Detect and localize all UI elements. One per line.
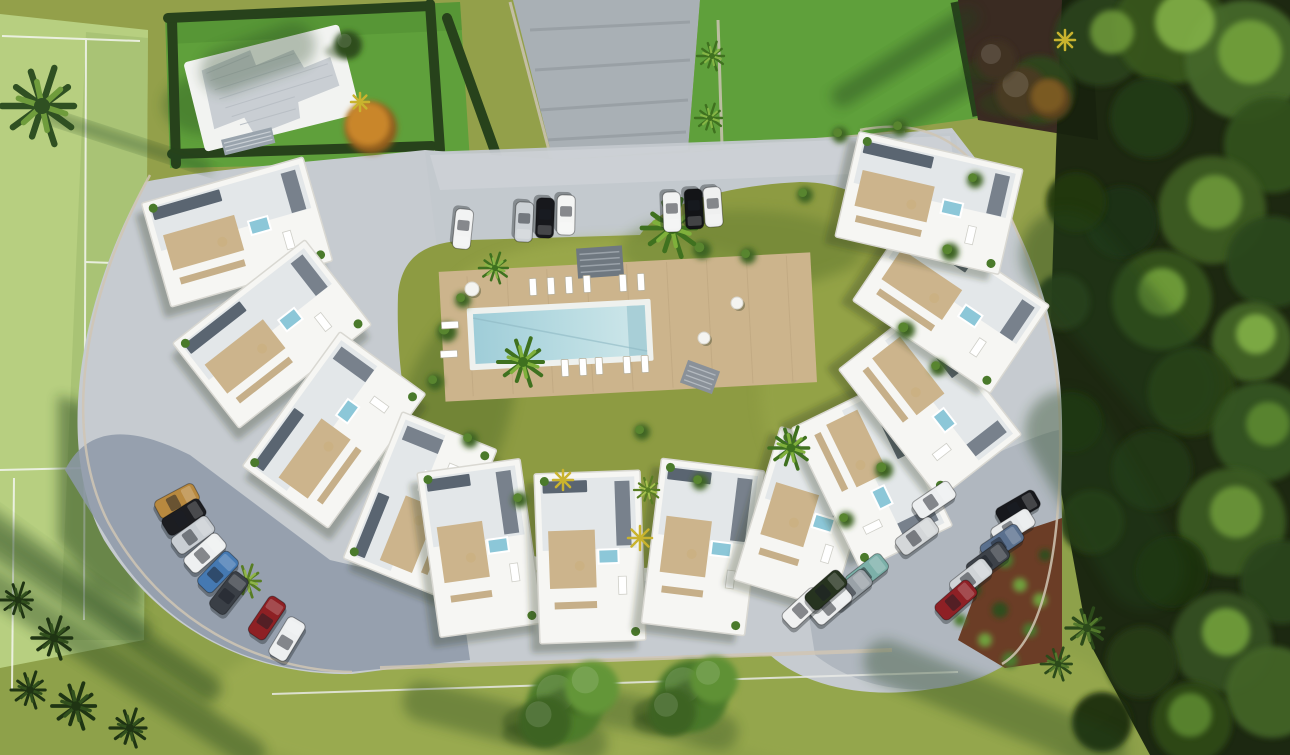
- bush-highlight: [635, 425, 644, 434]
- tree-canopy-light: [654, 693, 678, 717]
- bush-highlight: [456, 293, 465, 302]
- tree-canopy-light: [572, 666, 599, 693]
- sun-lounger: [441, 321, 458, 329]
- bush-highlight: [893, 121, 902, 130]
- bush-highlight: [898, 322, 908, 332]
- tree-canopy-light: [696, 661, 720, 685]
- palm-crown: [645, 487, 651, 493]
- roof-deck: [660, 516, 712, 578]
- palm-crown: [492, 265, 498, 271]
- yellow-plant: [351, 93, 369, 111]
- rooftop-jacuzzi: [487, 537, 509, 554]
- car-hood: [516, 229, 530, 239]
- forest-tree-highlight: [1218, 20, 1282, 84]
- car-hood: [559, 222, 573, 232]
- palm-crown: [126, 724, 134, 732]
- forest-tree-highlight: [1188, 175, 1242, 229]
- car-hood: [537, 225, 551, 235]
- pergola: [555, 601, 598, 609]
- forest-tree-highlight: [1202, 608, 1250, 656]
- palm-crown: [71, 701, 81, 711]
- bush-highlight: [833, 128, 842, 137]
- garden-plant: [978, 633, 992, 647]
- car-hood: [665, 219, 679, 229]
- garden-plant: [992, 602, 1008, 618]
- stairs-main: [576, 245, 624, 278]
- sun-lounger: [595, 357, 603, 374]
- sun-lounger: [561, 359, 569, 376]
- palm-crown: [34, 98, 50, 114]
- sun-lounger: [529, 278, 537, 295]
- car-windshield: [518, 213, 531, 224]
- rooftop-jacuzzi: [598, 549, 618, 564]
- car-windshield: [457, 220, 470, 232]
- palm-crown: [709, 53, 715, 59]
- building-module: [525, 470, 646, 653]
- car-hood: [454, 235, 469, 246]
- sun-lounger: [565, 276, 573, 293]
- forest-tree-highlight: [1246, 402, 1290, 446]
- bush-highlight: [513, 493, 522, 502]
- sun-lounger: [619, 274, 627, 291]
- aerial-site-render: [0, 0, 1290, 755]
- car: [511, 198, 534, 242]
- bush-highlight: [798, 188, 807, 197]
- forest-tree-highlight: [1168, 693, 1212, 737]
- bush-highlight: [931, 361, 940, 370]
- roof-panel-side: [614, 481, 631, 546]
- yellow-plant: [553, 470, 573, 490]
- car-windshield: [560, 206, 572, 217]
- bush-highlight: [463, 433, 472, 442]
- forest-tree: [1106, 626, 1178, 698]
- tree-canopy-light: [981, 44, 1001, 64]
- car: [532, 195, 554, 239]
- building-module: [408, 459, 544, 648]
- bush-highlight: [942, 244, 952, 254]
- orange-tree: [1031, 79, 1065, 113]
- sun-lounger: [623, 356, 631, 373]
- palm-crown: [707, 115, 713, 121]
- car: [699, 183, 723, 227]
- car: [659, 189, 681, 233]
- forest-tree-highlight: [1090, 10, 1134, 54]
- bush-highlight: [839, 513, 848, 522]
- car-windshield: [688, 200, 701, 211]
- forest-tree-highlight: [1236, 314, 1276, 354]
- sun-lounger: [583, 275, 591, 292]
- car-windshield: [666, 203, 678, 214]
- car-windshield: [706, 198, 719, 209]
- roof-deck: [437, 521, 490, 583]
- car-hood: [687, 216, 701, 226]
- scene-svg: [0, 0, 1290, 755]
- sun-lounger: [641, 355, 649, 372]
- roof-deck: [548, 530, 597, 589]
- bush-highlight: [876, 462, 886, 472]
- forest-tree: [1110, 78, 1190, 158]
- car: [449, 205, 474, 250]
- car: [554, 192, 576, 235]
- round-table: [731, 297, 743, 309]
- palm-crown: [26, 686, 34, 694]
- bush-highlight: [741, 249, 750, 258]
- sun-lounger: [637, 273, 645, 290]
- hedge-left: [172, 20, 176, 164]
- yellow-plant: [1055, 30, 1075, 50]
- bush-highlight: [428, 375, 437, 384]
- palm-crown: [518, 357, 528, 367]
- palm-crown: [1055, 661, 1062, 668]
- bush-highlight: [693, 475, 702, 484]
- bush-highlight: [968, 173, 977, 182]
- rooftop-lounger: [618, 576, 627, 594]
- palm-crown: [787, 444, 796, 453]
- palm-crown: [50, 634, 59, 643]
- palm-crown: [1083, 624, 1091, 632]
- round-table: [698, 332, 710, 344]
- tree-canopy-light: [526, 701, 552, 727]
- forest-tree-highlight: [1210, 486, 1262, 538]
- palm-crown: [14, 596, 21, 603]
- garden-plant: [1013, 578, 1027, 592]
- sun-lounger: [440, 350, 457, 358]
- sun-lounger: [579, 358, 587, 375]
- rooftop-jacuzzi: [941, 199, 964, 217]
- car-hood: [707, 214, 722, 225]
- yellow-plant: [628, 526, 652, 550]
- car-windshield: [539, 209, 551, 220]
- tree-canopy-light: [338, 34, 352, 48]
- garden-plant: [1039, 549, 1051, 561]
- round-table: [465, 282, 479, 296]
- stairs-main-body: [576, 245, 624, 278]
- sun-lounger: [547, 277, 555, 294]
- rooftop-jacuzzi: [710, 541, 732, 557]
